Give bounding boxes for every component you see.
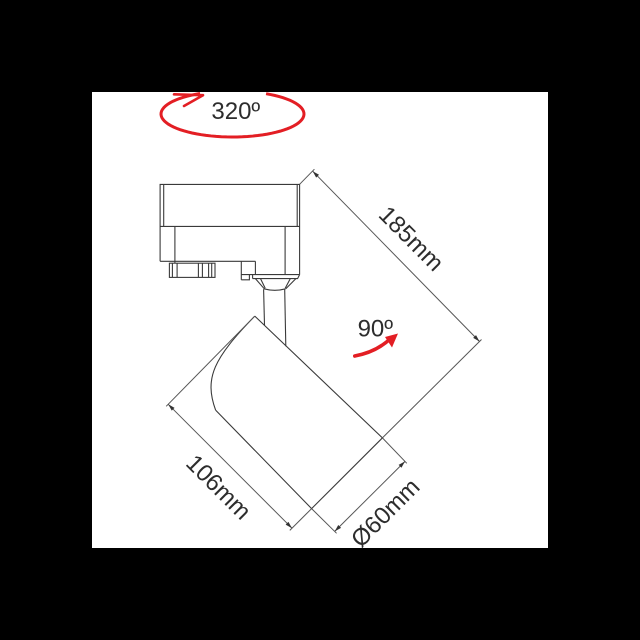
svg-text:320º: 320º [211, 98, 260, 125]
